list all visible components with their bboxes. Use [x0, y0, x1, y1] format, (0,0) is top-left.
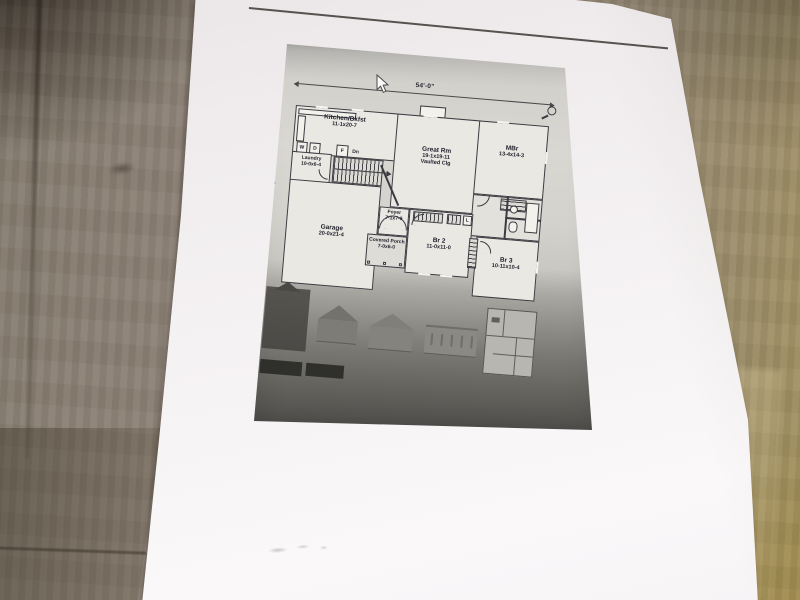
thumb-line: [486, 335, 534, 340]
washer-box: W: [296, 141, 308, 153]
paper-sheet: 54'-0" 42'-0": [0, 0, 800, 600]
bathtub: [524, 203, 539, 234]
railing-post: [470, 336, 473, 348]
magnifier-lens: [547, 106, 557, 116]
porch-post: [383, 262, 386, 265]
caption-strip-1: [259, 359, 302, 376]
photocopy-scan: 54'-0" 42'-0": [250, 40, 600, 440]
thumb-line: [491, 317, 499, 323]
magnifier-handle: [541, 115, 548, 119]
dryer-box: D: [309, 142, 321, 154]
porch-post: [399, 263, 402, 266]
toilet: [508, 221, 518, 233]
furnace-box: F: [336, 145, 349, 158]
railing-post: [460, 336, 463, 348]
thumb-line: [493, 353, 533, 357]
linen-box: L: [462, 215, 472, 226]
window: [418, 272, 430, 275]
railing-post: [430, 333, 433, 345]
arrow-pointer-icon: [376, 74, 390, 99]
paper-shadow: 54'-0" 42'-0": [0, 0, 800, 600]
elevation-photo-dark: [261, 286, 310, 351]
elevation-porch-railing: [424, 325, 478, 358]
stairs-arrow-head: [386, 170, 391, 176]
stairs-down-label: Dn: [352, 149, 359, 156]
linen-label: L: [466, 218, 470, 224]
dimension-arrow-left: [293, 80, 298, 86]
furnace-label: F: [340, 148, 344, 154]
scan-content: 54'-0" 42'-0": [256, 44, 571, 439]
porch-post: [367, 260, 370, 263]
photo-of-floorplan-printout: 54'-0" 42'-0": [0, 0, 800, 600]
railing-post: [450, 335, 453, 347]
dryer-label: D: [313, 145, 317, 151]
elevation-house-2-body: [368, 326, 414, 353]
railing-post: [440, 334, 443, 346]
elevation-house-1-body: [316, 319, 358, 345]
thumbnail-floor-plan: [482, 308, 537, 378]
washer-label: W: [299, 144, 304, 150]
thumb-line: [502, 310, 505, 336]
caption-strip-2: [305, 363, 344, 379]
closet-br2-b: [446, 214, 461, 225]
window: [440, 274, 452, 277]
